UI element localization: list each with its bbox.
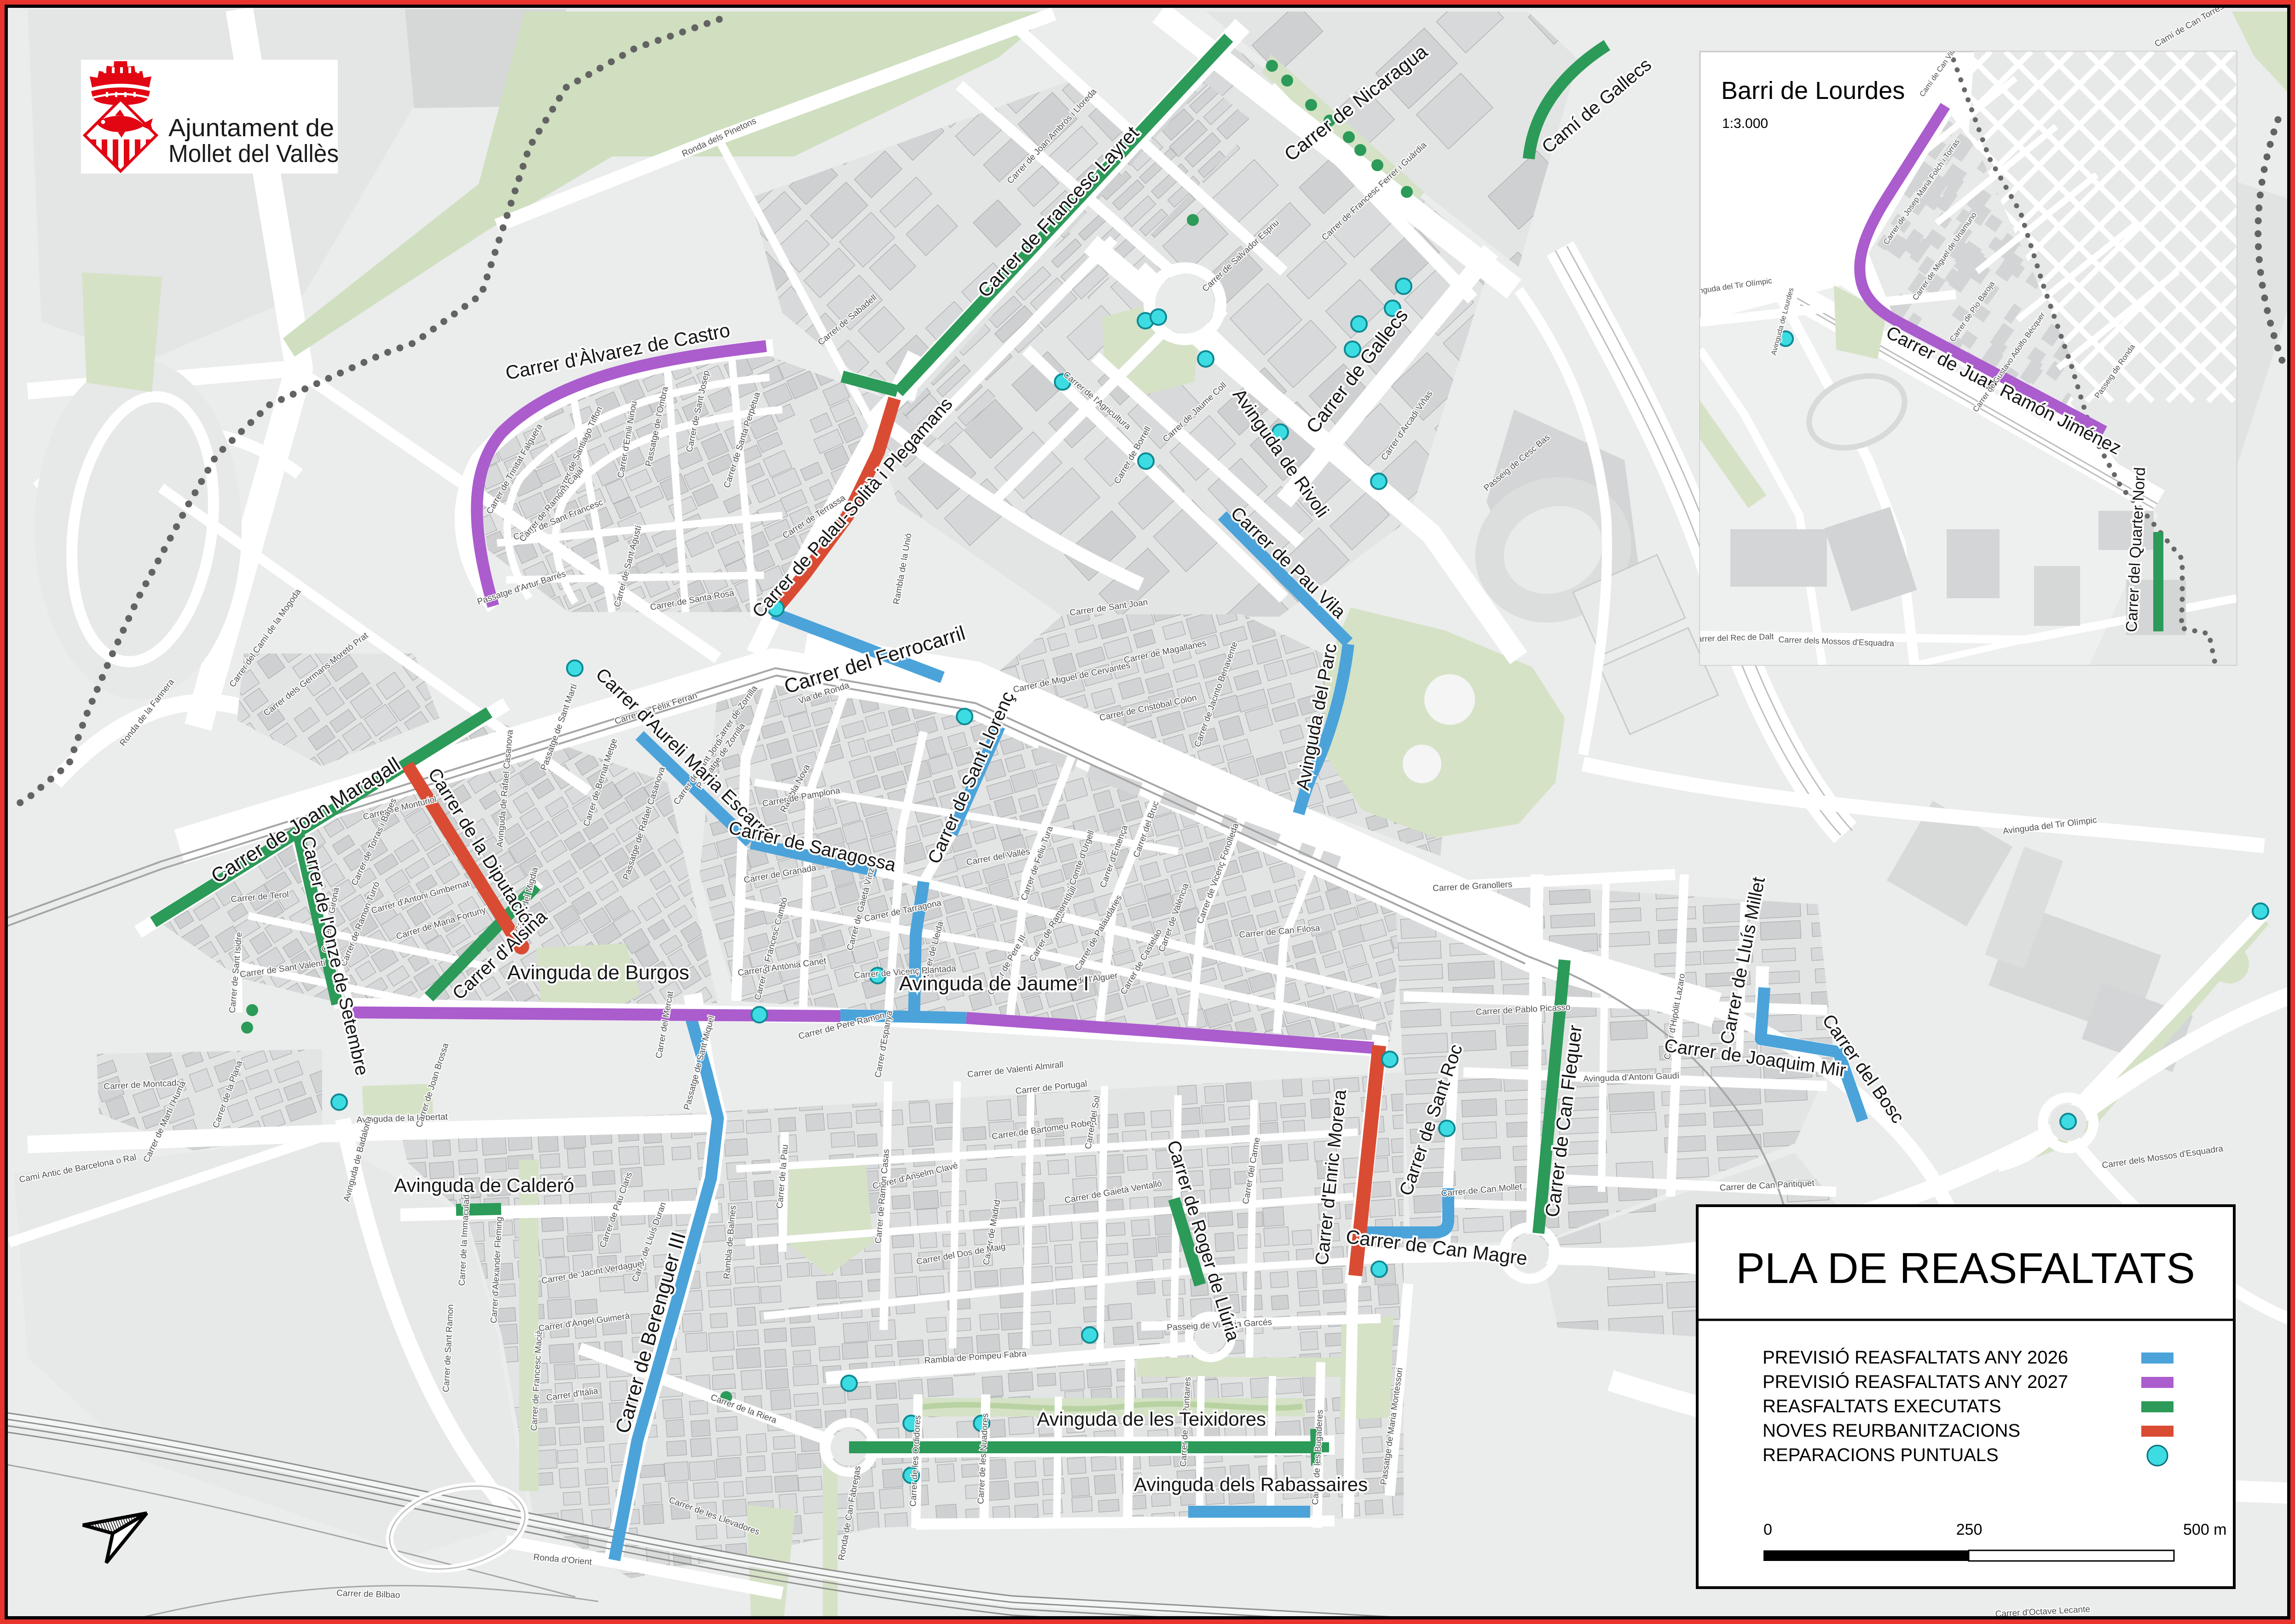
svg-text:250: 250 bbox=[1956, 1521, 1983, 1538]
svg-text:Avinguda de Calderó: Avinguda de Calderó bbox=[394, 1174, 574, 1196]
svg-text:Avinguda de les Teixidores: Avinguda de les Teixidores bbox=[1037, 1408, 1266, 1430]
svg-text:1:3.000: 1:3.000 bbox=[1722, 116, 1768, 131]
svg-text:PREVISIÓ REASFALTATS ANY 2027: PREVISIÓ REASFALTATS ANY 2027 bbox=[1763, 1371, 2068, 1392]
svg-text:REPARACIONS PUNTUALS: REPARACIONS PUNTUALS bbox=[1763, 1445, 1999, 1465]
svg-text:Barri de Lourdes: Barri de Lourdes bbox=[1721, 77, 1905, 104]
svg-text:Mollet del Vallès: Mollet del Vallès bbox=[168, 140, 339, 168]
svg-text:NOVES REURBANITZACIONS: NOVES REURBANITZACIONS bbox=[1763, 1421, 2020, 1441]
svg-text:Avinguda dels Rabassaires: Avinguda dels Rabassaires bbox=[1134, 1474, 1368, 1495]
svg-text:PLA DE REASFALTATS: PLA DE REASFALTATS bbox=[1736, 1244, 2195, 1292]
svg-text:REASFALTATS EXECUTATS: REASFALTATS EXECUTATS bbox=[1763, 1396, 2001, 1416]
svg-text:Ajuntament de: Ajuntament de bbox=[168, 114, 334, 142]
svg-text:0: 0 bbox=[1763, 1521, 1772, 1538]
svg-text:Avinguda de Burgos: Avinguda de Burgos bbox=[507, 961, 689, 984]
svg-text:PREVISIÓ REASFALTATS ANY 2026: PREVISIÓ REASFALTATS ANY 2026 bbox=[1763, 1347, 2068, 1368]
svg-text:Avinguda de Jaume I: Avinguda de Jaume I bbox=[899, 972, 1089, 995]
svg-text:500 m: 500 m bbox=[2183, 1521, 2227, 1538]
